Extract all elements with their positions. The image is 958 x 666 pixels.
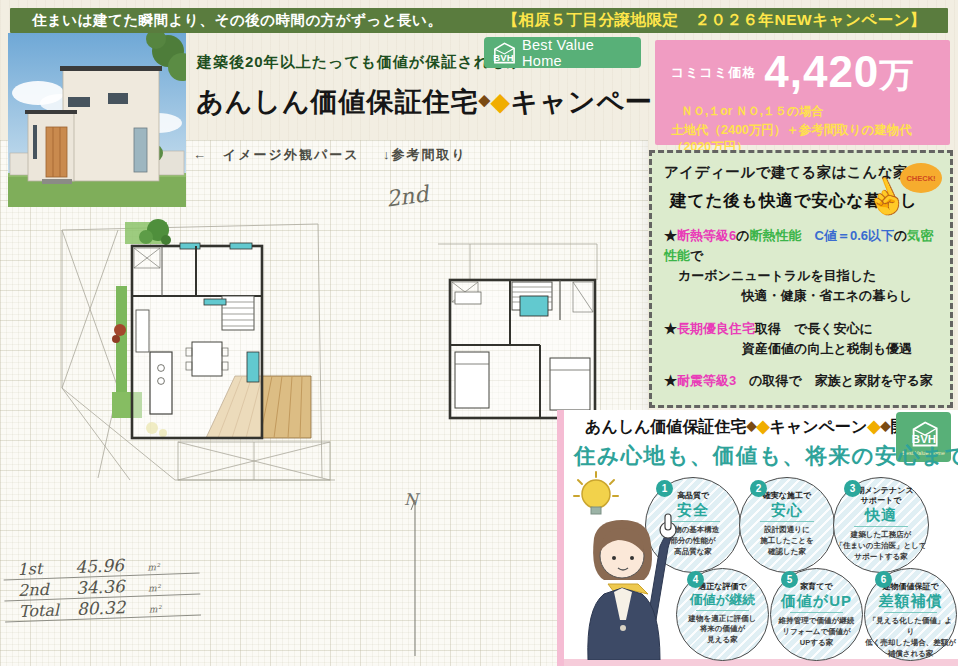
value-circle-2: 2 確実な施工で 安心 設計図通りに 施工したことを 確認した家 [739,477,835,573]
area-table: 1st 45.96 m² 2nd 34.36 m² Total 80.32 m² [3,553,201,623]
diamond-icon: ◆ [747,419,757,432]
features-box: アイディールで建てる家はこんな家！ 建てた後も快適で安心な暮らし CHECK! … [649,150,953,408]
bullet-insulation: ★断熱等級6の断熱性能 C値＝0.6以下の気密性能で [664,226,938,266]
first-floor-plan [132,243,262,438]
check-callout: CHECK! ☝ [862,163,942,221]
pink-border-bottom [564,659,958,666]
star-icon: ★ [664,228,677,243]
value-circle-4: 4 適正な評価で 価値が継続 建物を適正に評価し 将来の価値が 見える家 [676,568,769,661]
price-value: 4,420万 [764,50,914,94]
circle-number: 5 [781,571,798,588]
top-banner: 住まいは建てた瞬間より、その後の時間の方がずっと長い。 【相原５丁目分譲地限定 … [10,8,948,33]
area-unit: m² [149,604,161,614]
value-circle-6: 6 建物価値保証で 差額補償 「見える化した価値」より 低く売却した場合、差額が… [864,568,957,661]
diamond-icon: ◆ [881,419,891,432]
second-floor-plan [438,244,597,418]
price-unit: 万 [879,56,914,94]
bvh-house-icon: BVH [491,40,516,66]
north-arrow [411,500,415,656]
campaign-title: あんしん価値保証住宅◆◆キャンペーン◆◆ [196,84,714,120]
feature-bullets: ★断熱等級6の断熱性能 C値＝0.6以下の気密性能で カーボンニュートラルを目指… [664,226,938,391]
price-label: コミコミ価格 [671,64,756,82]
area-unit: m² [147,562,159,572]
bullet-insulation-line3: 快適・健康・省エネの暮らし [664,286,912,306]
diamond-icon: ◆ [867,418,880,435]
bullet-insulation-line2: カーボンニュートラルを目指した [678,266,938,286]
price-case-line1: ＮＯ,１or ＮＯ,１５の場合 [681,103,938,120]
logo-name: Best Value Home [522,37,634,69]
diamond-icon: ◆ [757,418,770,435]
top-tagline: 住まいは建てた瞬間より、その後の時間の方がずっと長い。 [32,11,442,30]
lightbulb-icon [574,472,618,514]
best-value-home-logo: BVH Best Value Home [484,37,641,68]
price-box: コミコミ価格 4,420万 ＮＯ,１or ＮＯ,１５の場合 土地代（2400万円… [655,40,950,145]
circle-number: 2 [750,480,767,497]
area-name: 1st [17,558,76,579]
campaign-banner: あんしん価値保証住宅◆◆キャンペーン◆◆開催中 [585,417,939,438]
star-icon: ★ [664,373,677,388]
diamond-icon: ◆ [479,92,492,107]
value-circle-5: 5 家育てで 価値がUP 維持管理で価値が継続 リフォームで価値が UPする家 [770,568,863,661]
area-value: 45.96 [75,554,148,577]
bullet-seismic: ★耐震等級3 の取得で 家族と家財を守る家 [664,371,938,391]
panel-headline: 住み心地も、価値も、将来の安心までも。 [574,441,958,470]
circle-number: 4 [687,571,704,588]
bullet-longlife-line2: 資産価値の向上と税制も優遇 [664,339,912,359]
area-name: Total [18,600,77,621]
bullet-longlife: ★長期優良住宅取得 で長く安心に [664,319,938,339]
area-name: 2nd [18,579,77,600]
area-unit: m² [148,583,160,593]
woman-pointing-illustration [560,468,688,660]
check-bubble: CHECK! [900,163,942,193]
top-campaign-label: 【相原５丁目分譲地限定 ２０２６年NEWキャンペーン】 [503,10,926,31]
circle-number: 6 [875,571,892,588]
star-icon: ★ [664,321,677,336]
area-value: 34.36 [76,575,149,598]
value-circle-3: 3 長期メンテナンス サポートで 快適 建築した工務店が 「住まいの主治医」とし… [833,477,929,573]
price-conditions: ＮＯ,１or ＮＯ,１５の場合 土地代（2400万円）＋参考間取りの建物代（20… [671,103,938,156]
bvh-monogram: BVH [493,51,513,62]
diamond-icon: ◆ [491,90,510,114]
area-value: 80.32 [76,596,149,619]
campaign-title-name: あんしん価値保証住宅 [196,87,479,117]
circle-number: 3 [844,480,861,497]
